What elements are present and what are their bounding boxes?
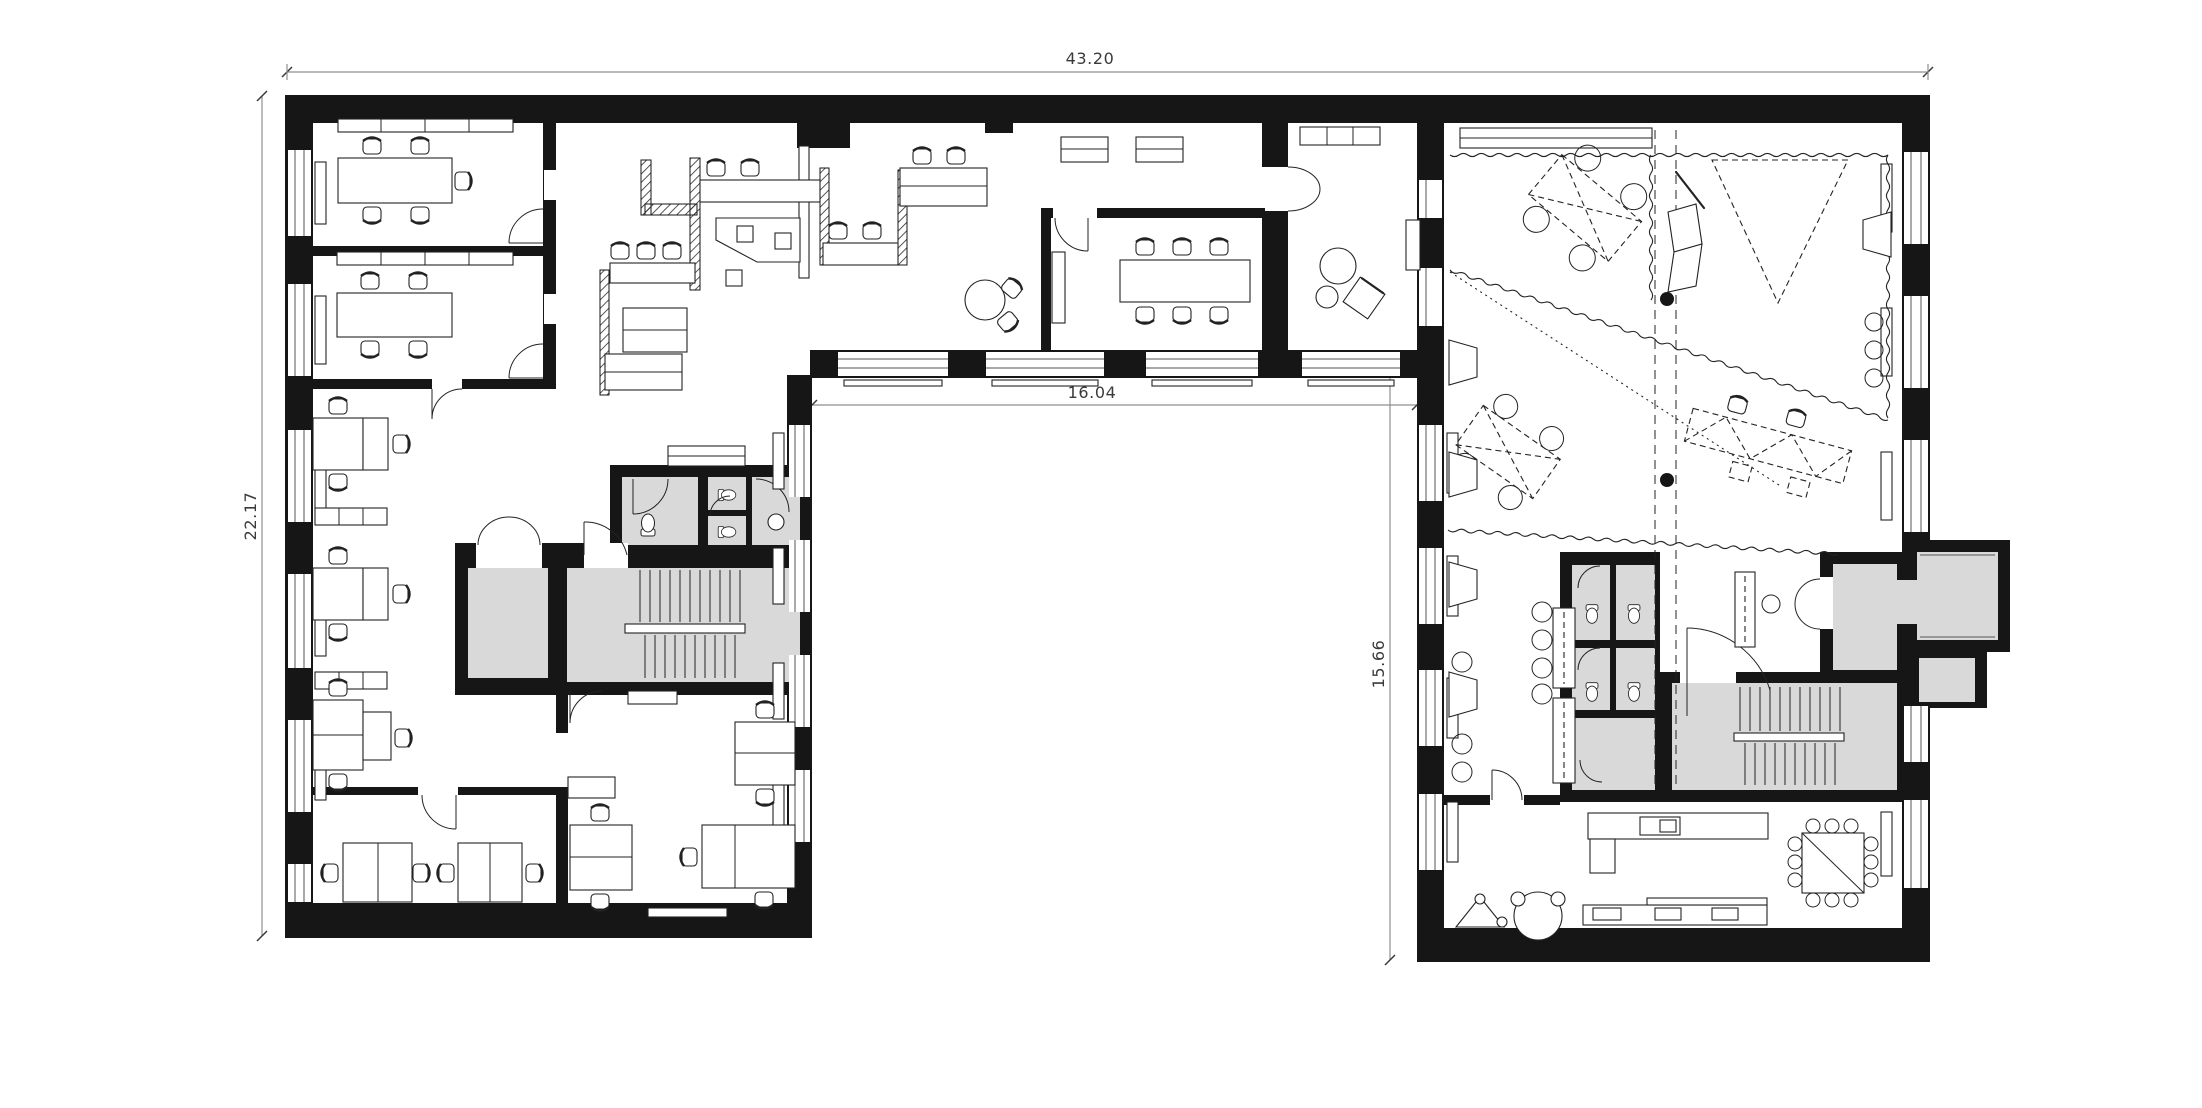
desk-group bbox=[313, 398, 410, 491]
meeting-room-top-2 bbox=[337, 252, 543, 378]
dimension-courtyard-height-label: 15.66 bbox=[1369, 640, 1388, 689]
curtain-line bbox=[1450, 153, 1888, 156]
stairs-right-handrail bbox=[1734, 733, 1844, 741]
stairs-left-handrail bbox=[625, 624, 745, 633]
meeting-table bbox=[338, 158, 452, 203]
core-right bbox=[1560, 552, 1905, 802]
round-table bbox=[965, 280, 1005, 320]
conference-table bbox=[1120, 260, 1250, 302]
round-table bbox=[1320, 248, 1356, 284]
meeting-room-top-1 bbox=[338, 119, 543, 243]
office-room-bottom-middle bbox=[568, 691, 795, 917]
column bbox=[1660, 292, 1674, 306]
flex-table-2 bbox=[1442, 386, 1574, 519]
triangle-marking bbox=[1712, 160, 1848, 303]
core-left bbox=[455, 446, 812, 695]
curtain-line bbox=[1649, 155, 1652, 300]
sink bbox=[1660, 820, 1676, 832]
lounge-room bbox=[1288, 127, 1420, 319]
desk-group bbox=[313, 680, 412, 791]
dimension-overall-width-label: 43.20 bbox=[1066, 49, 1115, 68]
hall-sideboards bbox=[1061, 137, 1183, 162]
floor-plan-sheet: 43.20 22.17 16.04 15.66 bbox=[0, 0, 2202, 1108]
desk-group bbox=[313, 548, 410, 641]
column bbox=[1660, 473, 1674, 487]
meeting-room-center bbox=[1052, 218, 1250, 324]
curtain-line bbox=[1448, 529, 1838, 555]
dimension-left-height-label: 22.17 bbox=[241, 492, 260, 541]
floor-plan-canvas: 43.20 22.17 16.04 15.66 bbox=[0, 0, 2202, 1108]
meeting-table bbox=[337, 293, 452, 337]
office-room-bottom-left bbox=[322, 795, 543, 902]
interior-walls bbox=[313, 123, 1560, 935]
open-office-left bbox=[313, 398, 412, 791]
elevator-annex bbox=[1897, 540, 2010, 708]
